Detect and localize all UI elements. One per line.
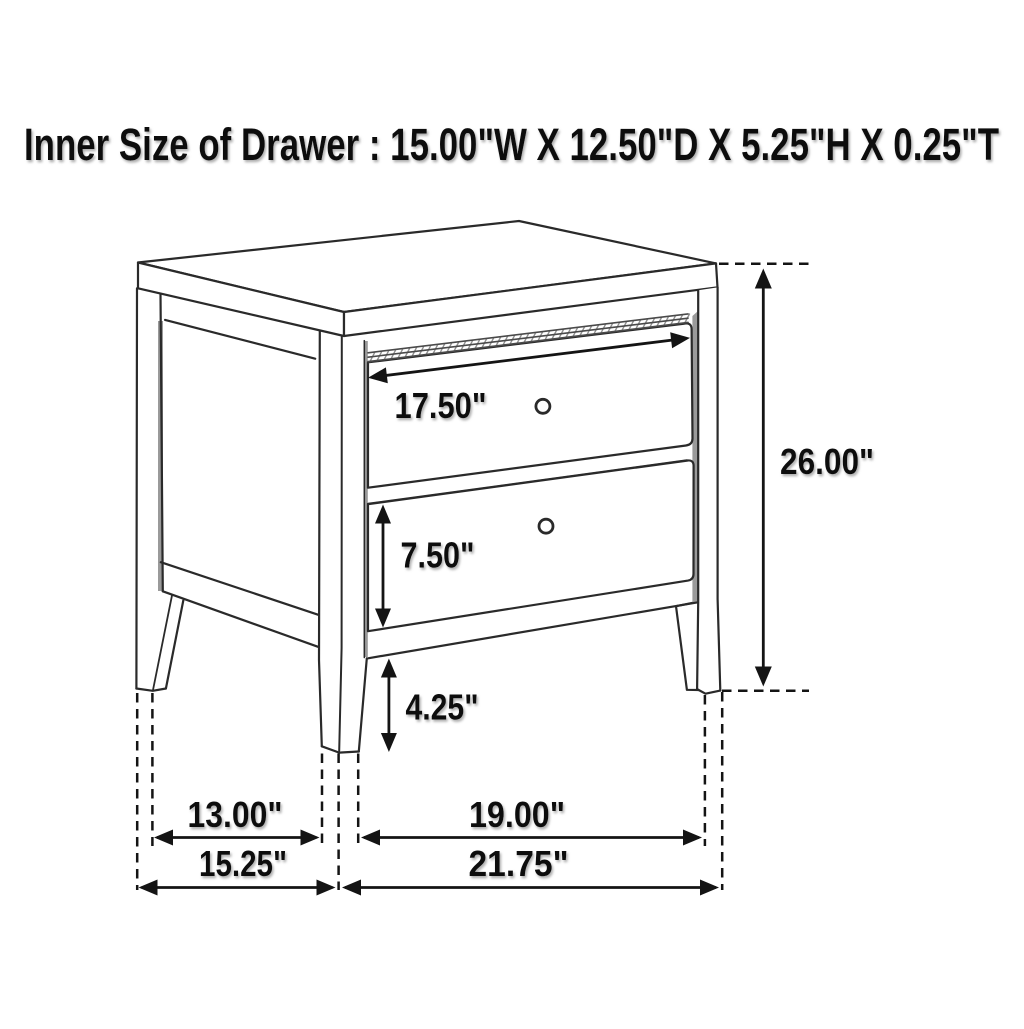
svg-text:15.25": 15.25"	[199, 843, 287, 884]
svg-text:17.50": 17.50"	[395, 385, 487, 426]
svg-text:19.00": 19.00"	[469, 794, 565, 835]
svg-text:7.50": 7.50"	[401, 535, 475, 576]
svg-text:4.25": 4.25"	[406, 687, 479, 728]
svg-text:13.00": 13.00"	[188, 794, 283, 835]
svg-text:Inner Size of Drawer : 15.00"W: Inner Size of Drawer : 15.00"W X 12.50"D…	[24, 119, 999, 170]
svg-text:21.75": 21.75"	[469, 843, 569, 884]
svg-text:26.00": 26.00"	[780, 441, 874, 482]
